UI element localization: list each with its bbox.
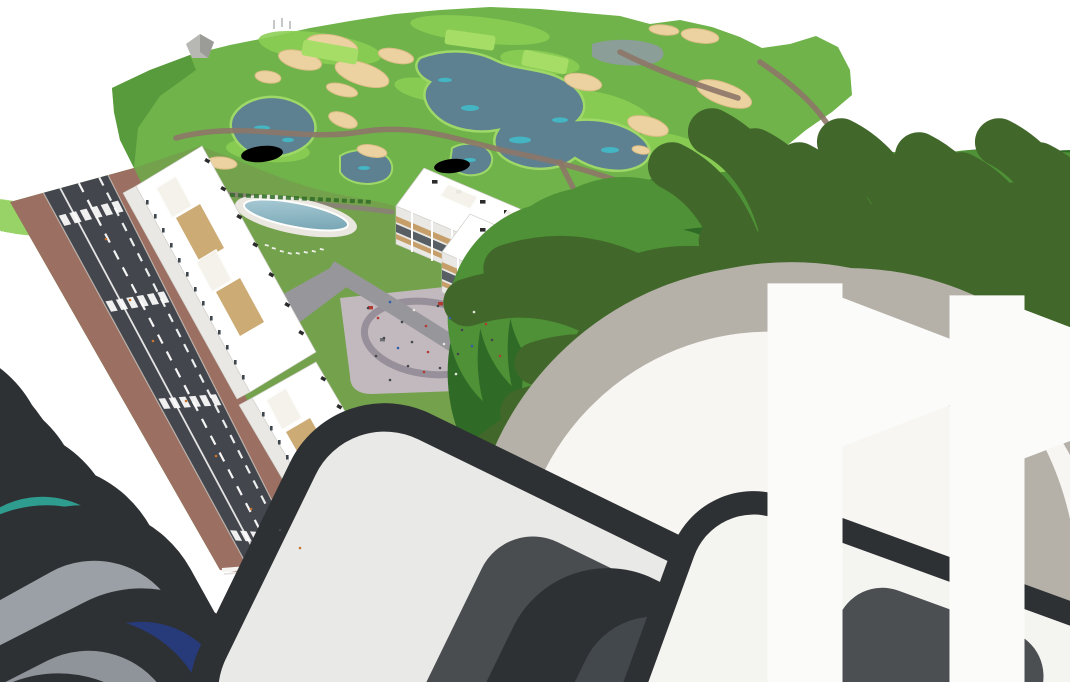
pedestrian [200,430,203,433]
plaza-person [423,371,426,374]
pedestrian [279,529,282,532]
plaza-person [471,345,474,348]
pedestrian [250,508,253,511]
plaza-person [491,339,494,342]
pedestrian [152,340,155,343]
pedestrian [129,299,132,302]
plaza-person [499,355,502,358]
resort-aerial-scene [0,0,1070,682]
plaza-person [413,309,416,312]
pedestrian [135,312,138,315]
plaza-person [427,351,430,354]
pedestrian [230,480,233,483]
pedestrian [175,380,178,383]
plaza-person [449,317,452,320]
plaza-person [389,379,392,382]
plaza-person [473,311,476,314]
plaza-person [439,367,442,370]
plaza-person [401,321,404,324]
plaza-person [411,341,414,344]
plaza-person [367,307,370,310]
plaza-person [443,343,446,346]
plaza-person [389,301,392,304]
flag-masts [274,18,290,29]
plaza-person [425,325,428,328]
plaza-person [455,373,458,376]
pedestrian [299,547,302,550]
plaza-person [485,323,488,326]
pedestrian [118,262,121,265]
plaza-person [375,355,378,358]
pedestrian [160,352,163,355]
render-canvas [0,0,1070,682]
plaza-person [407,365,410,368]
plaza-person [377,317,380,320]
plaza-person [457,353,460,356]
plaza-person [461,329,464,332]
plaza-person [437,305,440,308]
pedestrian [105,238,108,241]
pedestrian [215,455,218,458]
pedestrian [185,400,188,403]
plaza-person [397,347,400,350]
plaza-person [383,337,386,340]
